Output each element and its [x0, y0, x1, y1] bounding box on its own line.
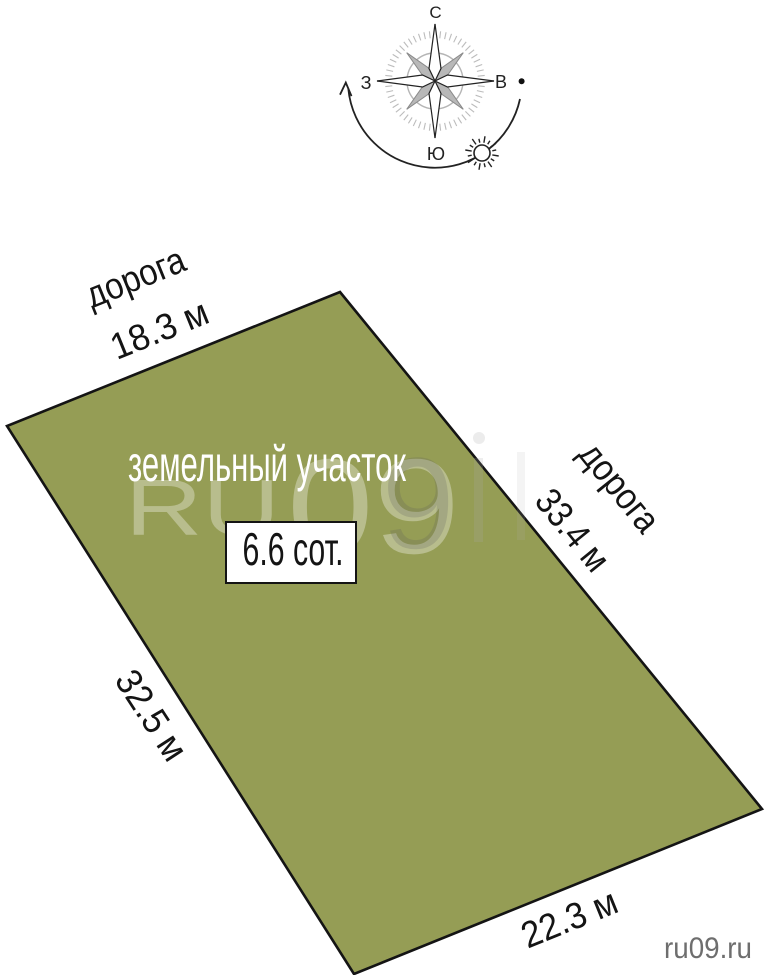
svg-text:С: С: [429, 3, 441, 22]
svg-text:Ю: Ю: [427, 144, 445, 164]
svg-text:В: В: [495, 72, 507, 92]
svg-text:земельный участок: земельный участок: [128, 436, 407, 492]
svg-text:ru09.ru: ru09.ru: [664, 932, 752, 965]
svg-text:З: З: [361, 73, 372, 93]
svg-text:6.6 сот.: 6.6 сот.: [243, 523, 344, 575]
